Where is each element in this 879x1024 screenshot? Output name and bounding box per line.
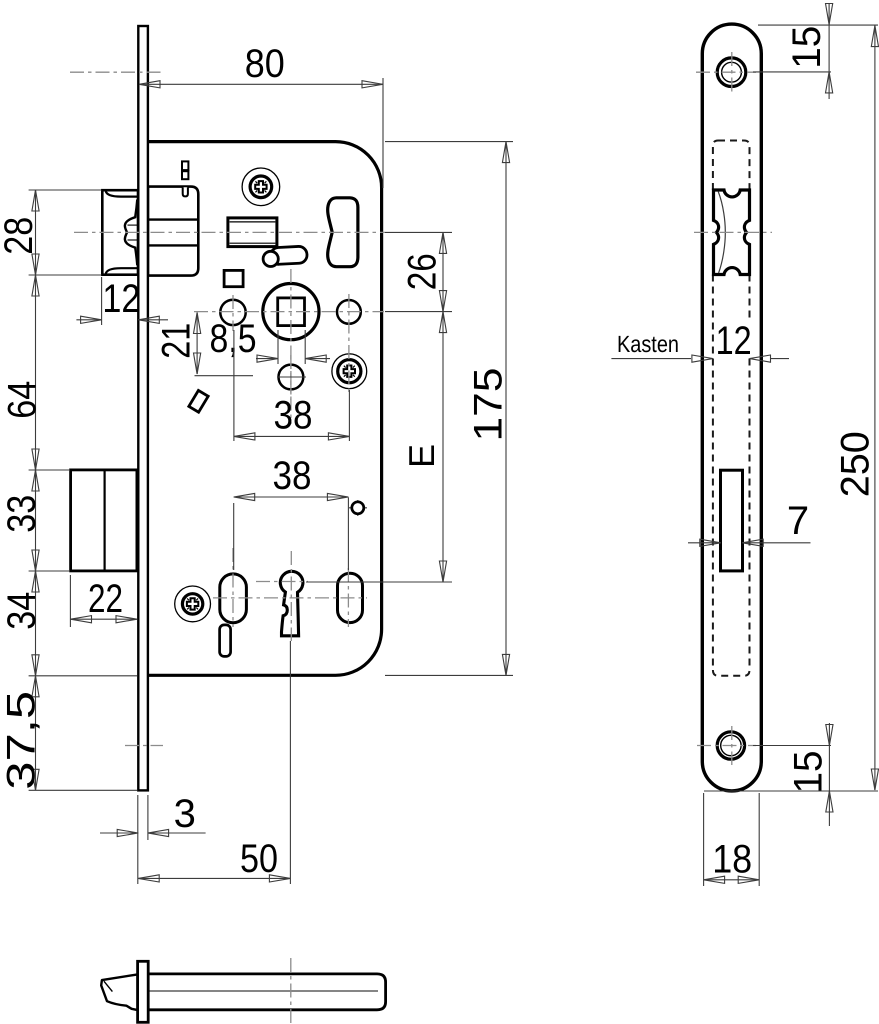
svg-text:15: 15 bbox=[786, 751, 830, 794]
svg-text:E: E bbox=[401, 444, 442, 468]
svg-text:80: 80 bbox=[245, 42, 285, 86]
svg-text:34: 34 bbox=[0, 592, 44, 630]
svg-text:38: 38 bbox=[273, 454, 312, 498]
svg-text:12: 12 bbox=[102, 277, 140, 321]
svg-text:26: 26 bbox=[401, 253, 445, 290]
svg-text:21: 21 bbox=[154, 323, 198, 359]
svg-text:50: 50 bbox=[240, 837, 278, 881]
svg-text:33: 33 bbox=[0, 495, 44, 533]
svg-text:8,5: 8,5 bbox=[210, 317, 257, 361]
svg-text:3: 3 bbox=[174, 792, 196, 836]
svg-text:175: 175 bbox=[466, 368, 510, 442]
svg-text:28: 28 bbox=[0, 217, 41, 255]
svg-text:38: 38 bbox=[274, 394, 313, 438]
svg-text:18: 18 bbox=[712, 837, 752, 881]
svg-text:37,5: 37,5 bbox=[0, 691, 43, 790]
svg-text:12: 12 bbox=[716, 319, 752, 363]
svg-text:7: 7 bbox=[787, 499, 809, 543]
svg-text:15: 15 bbox=[785, 26, 829, 69]
svg-text:Kasten: Kasten bbox=[617, 331, 679, 357]
svg-text:64: 64 bbox=[0, 381, 44, 419]
svg-text:22: 22 bbox=[88, 577, 123, 621]
svg-text:250: 250 bbox=[833, 431, 877, 497]
